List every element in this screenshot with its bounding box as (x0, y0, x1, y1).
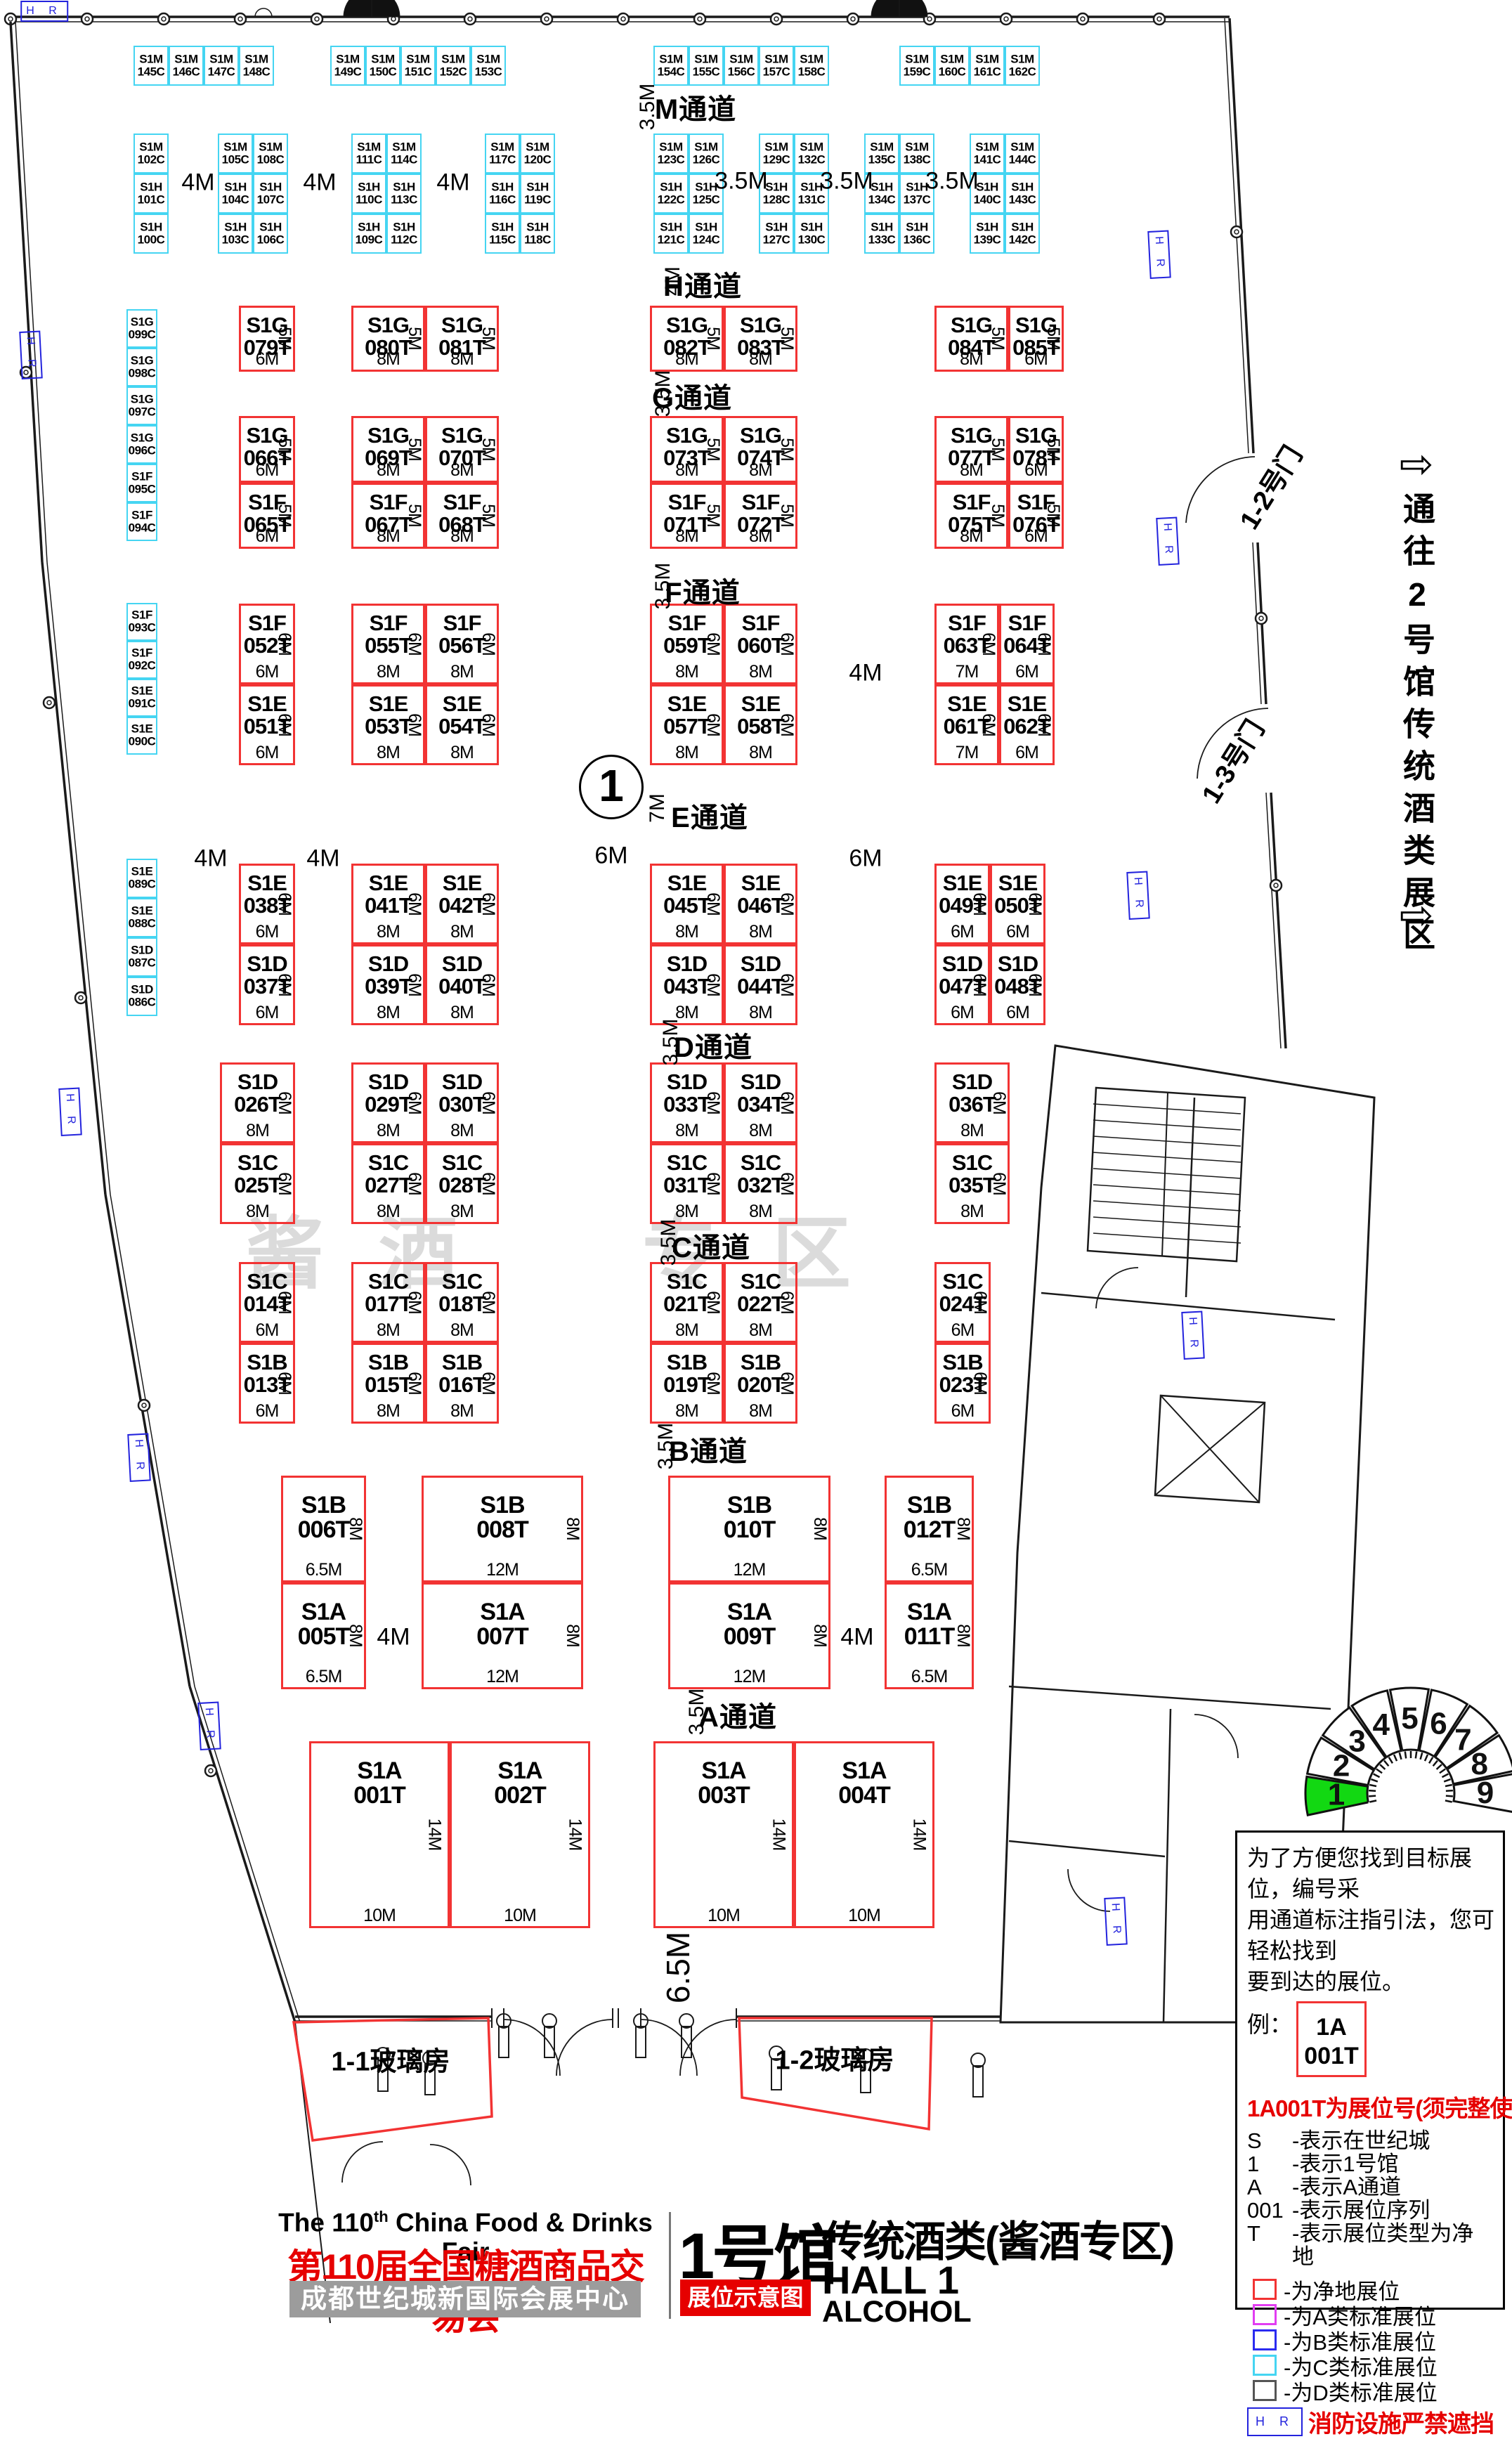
legend-def-row: S-表示在世纪城 (1247, 2129, 1494, 2152)
legend-color-swatch (1253, 2355, 1277, 2376)
category-english: ALCOHOL (822, 2295, 972, 2329)
floorplan-canvas: 123456789 为了方便您找到目标展位，编号采 用通道标注指引法，您可轻松找… (0, 0, 1512, 2323)
title-block: The 110th China Food & Drinks Fair 第110届… (0, 2198, 1512, 2323)
svg-text:5: 5 (1401, 1701, 1418, 1736)
legend-booth-number-note: 1A001T为展位号(须完整使用) (1247, 2090, 1494, 2123)
legend-paragraph-line: 用通道标注指引法，您可轻松找到 (1247, 1904, 1494, 1966)
venue-name-bar: 成都世纪城新国际会展中心 (289, 2281, 641, 2317)
legend-def-row: A-表示A通道 (1247, 2175, 1494, 2199)
legend-def-row: 1-表示1号馆 (1247, 2152, 1494, 2175)
hydrant-marker: H R (1247, 2407, 1303, 2436)
legend-example-line1: 1A (1298, 2013, 1364, 2042)
legend-example-line2: 001T (1298, 2042, 1364, 2071)
svg-text:4: 4 (1373, 1708, 1390, 1742)
svg-text:7: 7 (1454, 1722, 1471, 1757)
plan-badge: 展位示意图 (680, 2279, 811, 2316)
svg-text:9: 9 (1477, 1776, 1494, 1810)
legend-key-row: -为D类标准展位 (1247, 2378, 1494, 2403)
legend-paragraph-line: 为了方便您找到目标展位，编号采 (1247, 1842, 1494, 1904)
legend-example-booth: 1A 001T (1296, 2001, 1367, 2077)
svg-text:2: 2 (1333, 1749, 1350, 1783)
legend-example-label: 例： (1247, 2007, 1292, 2039)
title-divider (669, 2212, 671, 2319)
legend-color-swatch (1253, 2380, 1277, 2401)
svg-text:6: 6 (1430, 1707, 1447, 1741)
svg-text:3: 3 (1348, 1724, 1365, 1759)
fire-warning-text: 消防设施严禁遮挡 (1308, 2405, 1494, 2439)
legend-paragraph-line: 要到达的展位。 (1247, 1966, 1494, 1997)
legend-color-swatch (1253, 2329, 1277, 2350)
